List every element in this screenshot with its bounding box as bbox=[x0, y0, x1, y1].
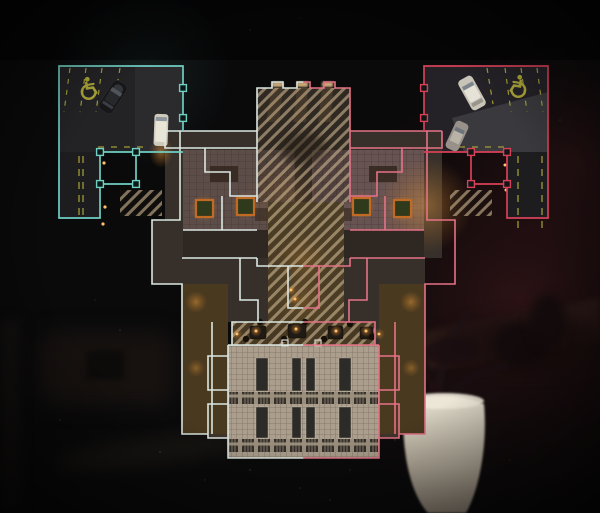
scene-canvas bbox=[0, 0, 600, 513]
game-viewport bbox=[0, 0, 600, 513]
vignette bbox=[0, 0, 600, 513]
top-shade bbox=[0, 0, 600, 60]
